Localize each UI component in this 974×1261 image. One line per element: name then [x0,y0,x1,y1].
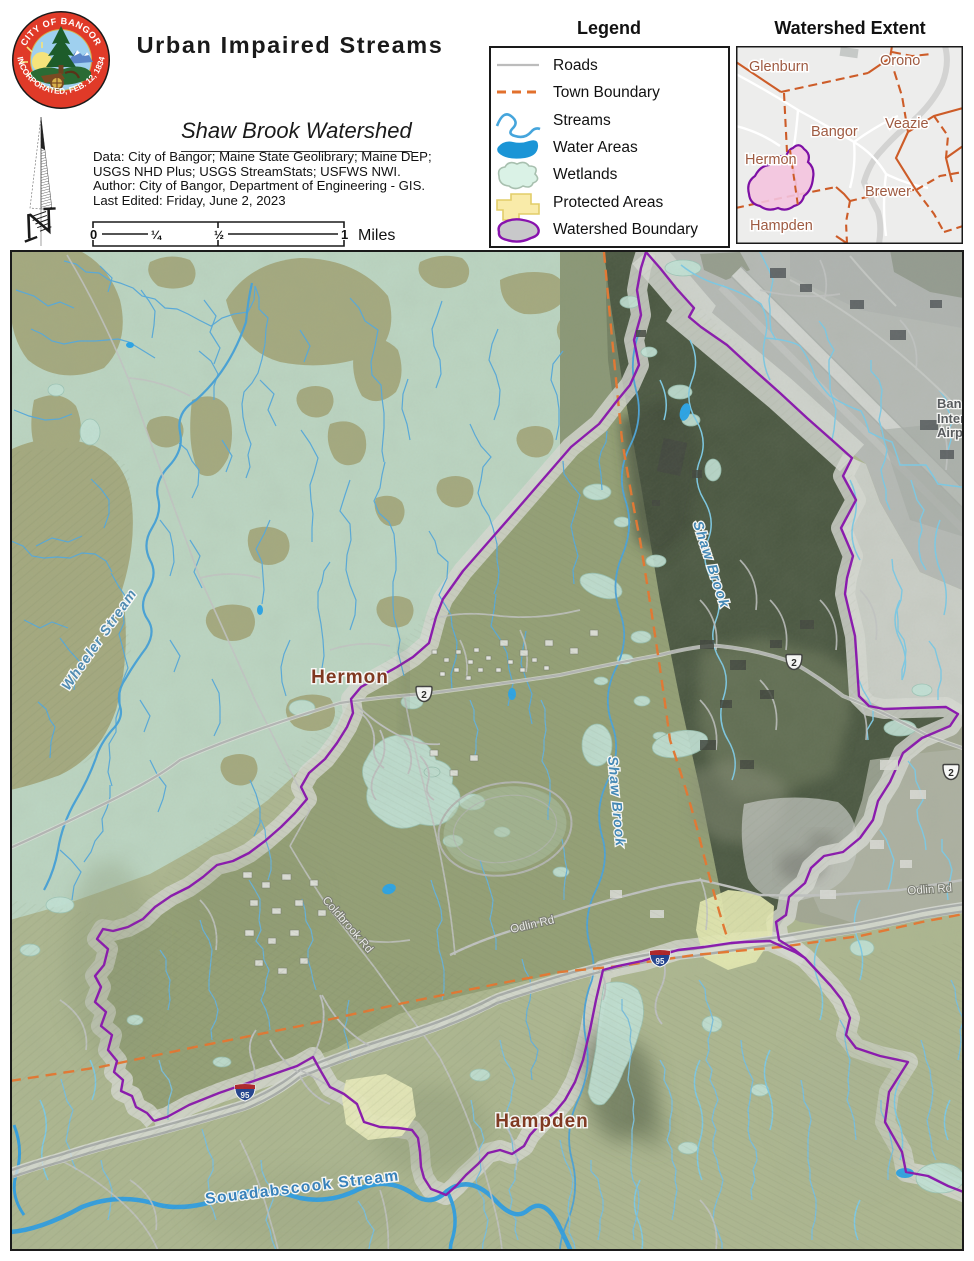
svg-text:Hermon: Hermon [745,152,797,168]
svg-text:Streams: Streams [553,112,611,129]
svg-text:1: 1 [341,227,348,242]
svg-text:Orono: Orono [880,53,920,69]
svg-text:Bangor: Bangor [811,124,858,140]
svg-text:Watershed Boundary: Watershed Boundary [553,221,698,238]
svg-text:Wetlands: Wetlands [553,166,618,183]
svg-text:Miles: Miles [358,227,395,244]
svg-text:Water Areas: Water Areas [553,139,638,156]
svg-text:Hampden: Hampden [750,218,813,234]
svg-text:Protected Areas: Protected Areas [553,194,664,211]
svg-text:Veazie: Veazie [885,116,929,132]
svg-text:Roads: Roads [553,57,598,74]
svg-text:Glenburn: Glenburn [749,59,809,75]
svg-text:½: ½ [214,228,224,242]
svg-text:Town Boundary: Town Boundary [553,84,660,101]
svg-text:Brewer: Brewer [865,184,911,200]
svg-text:¼: ¼ [151,228,162,242]
svg-text:0: 0 [90,227,97,242]
